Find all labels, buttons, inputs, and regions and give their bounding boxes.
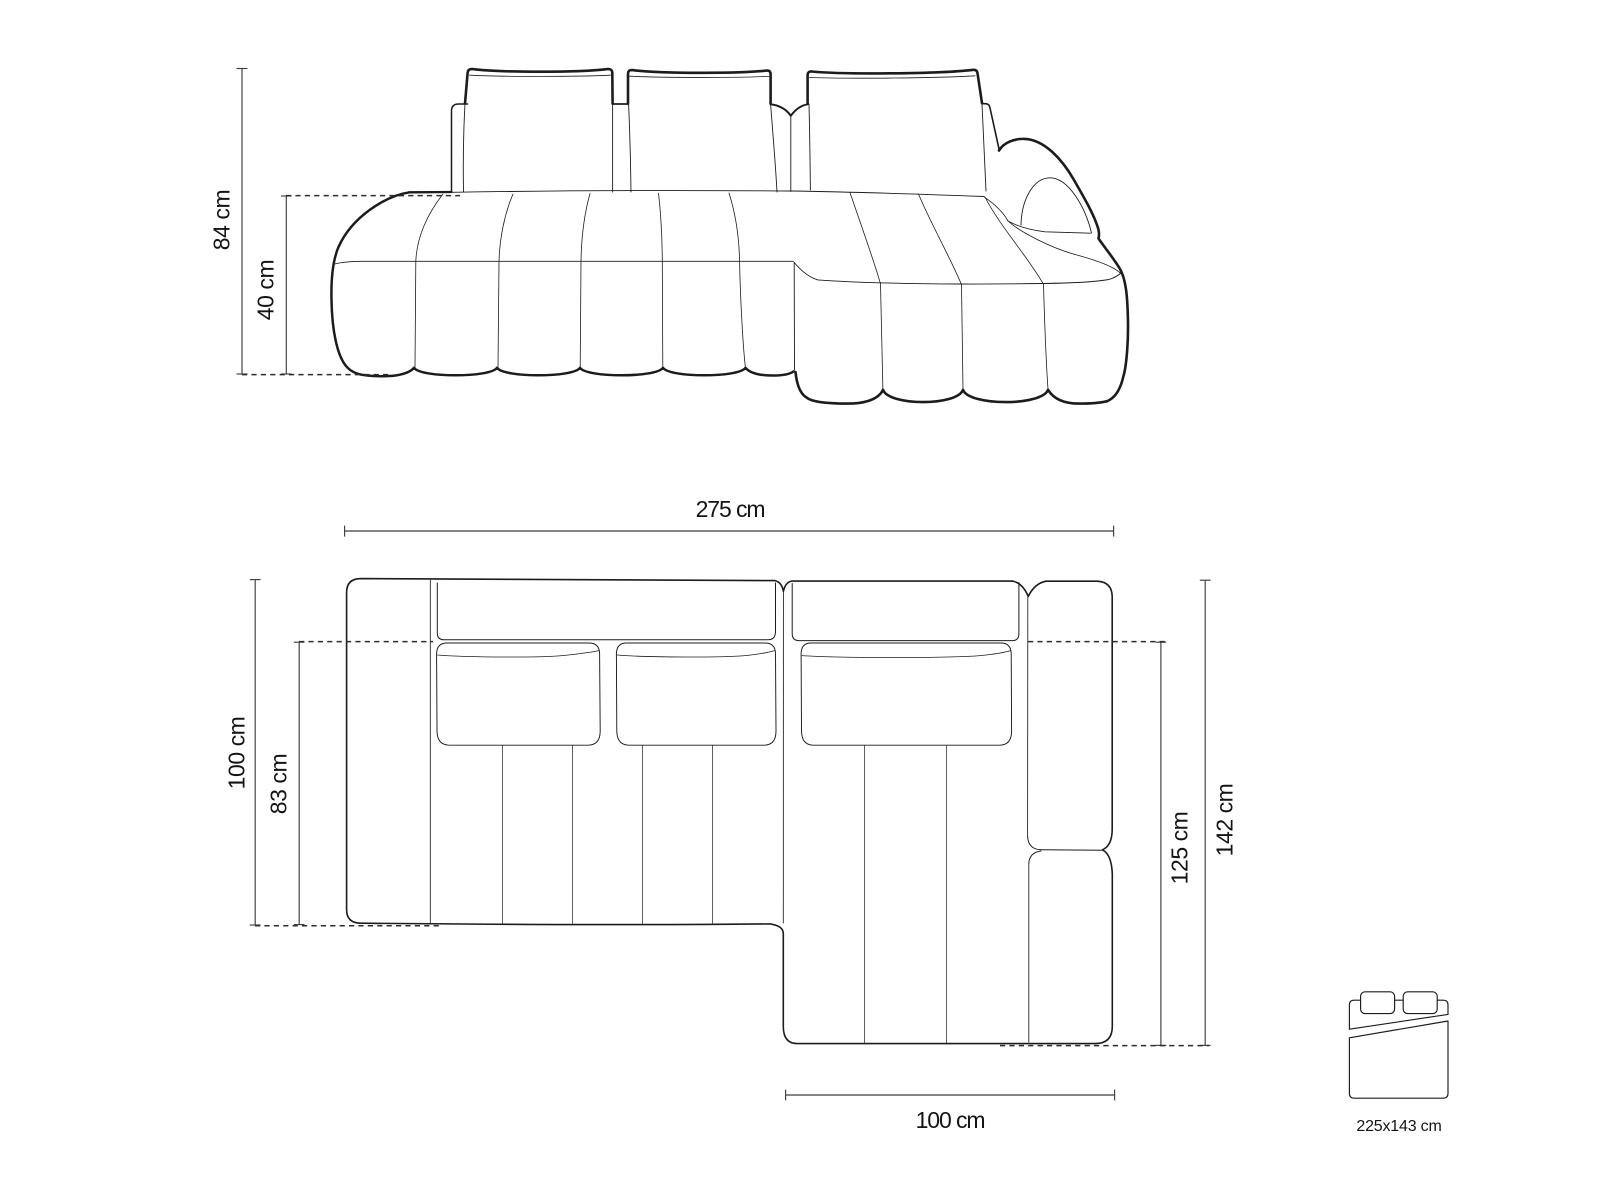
svg-text:275 cm: 275 cm [696, 496, 765, 522]
svg-text:84 cm: 84 cm [208, 190, 234, 250]
svg-text:83 cm: 83 cm [265, 754, 291, 814]
svg-text:125 cm: 125 cm [1166, 812, 1192, 885]
svg-text:225x143 cm: 225x143 cm [1356, 1118, 1441, 1135]
svg-text:100 cm: 100 cm [223, 717, 249, 790]
svg-text:40 cm: 40 cm [252, 260, 278, 320]
svg-text:100 cm: 100 cm [916, 1107, 985, 1133]
svg-text:142 cm: 142 cm [1211, 784, 1237, 857]
